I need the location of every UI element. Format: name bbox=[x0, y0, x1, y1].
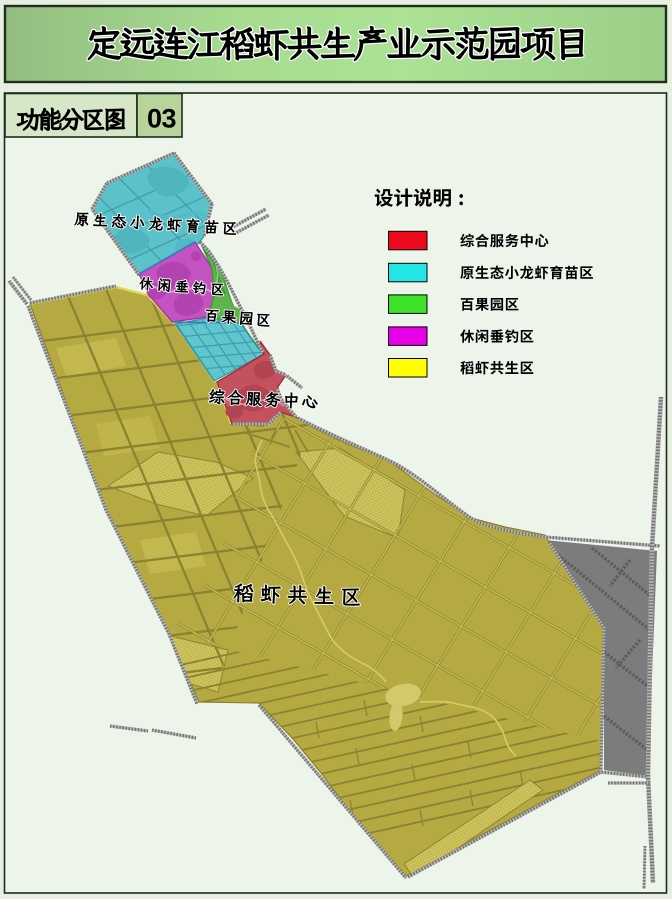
svg-text:03: 03 bbox=[147, 104, 177, 134]
